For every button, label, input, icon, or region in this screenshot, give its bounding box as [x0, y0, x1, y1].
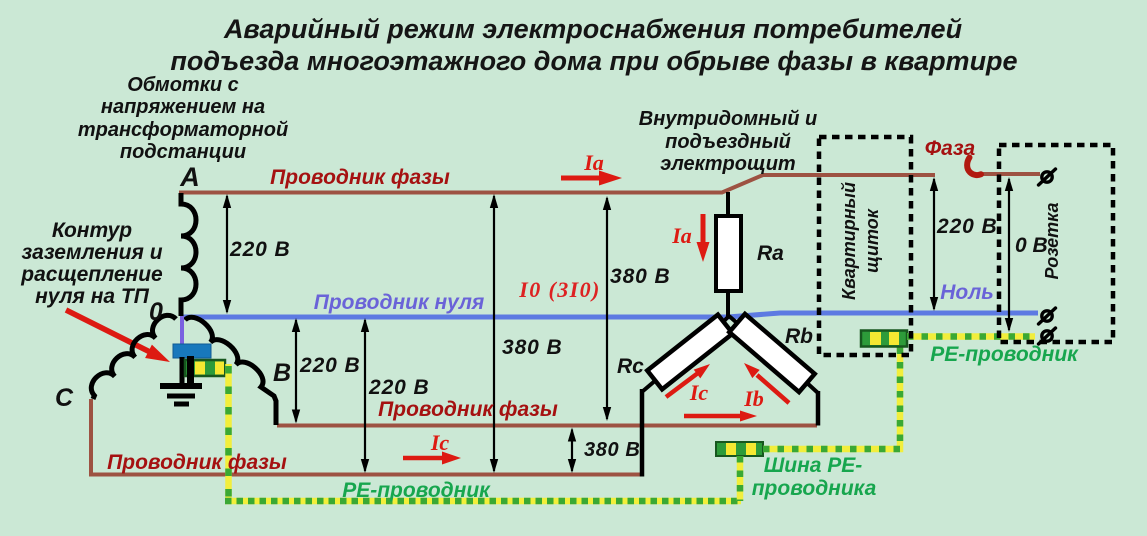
svg-text:PE-проводник: PE-проводник: [930, 343, 1079, 366]
svg-text:Проводник фазы: Проводник фазы: [378, 398, 558, 421]
svg-text:щиток: щиток: [862, 208, 882, 273]
svg-text:расщепление: расщепление: [20, 263, 163, 286]
svg-text:Шина PE-: Шина PE-: [764, 454, 863, 477]
svg-text:380 В: 380 В: [584, 439, 640, 461]
svg-text:трансформаторной: трансформаторной: [78, 119, 288, 141]
svg-text:нуля на ТП: нуля на ТП: [35, 285, 150, 308]
svg-text:А: А: [179, 162, 200, 192]
svg-text:380 В: 380 В: [610, 265, 671, 288]
svg-text:напряжением на: напряжением на: [101, 96, 265, 118]
svg-text:Ia: Ia: [671, 223, 692, 248]
svg-text:заземления и: заземления и: [21, 241, 162, 264]
svg-text:С: С: [55, 384, 74, 412]
svg-text:Ноль: Ноль: [940, 281, 994, 304]
svg-text:Аварийный режим электроснабжен: Аварийный режим электроснабжения потреби…: [223, 14, 963, 44]
svg-text:Ic: Ic: [430, 430, 450, 455]
svg-text:Внутридомный и: Внутридомный и: [639, 108, 817, 130]
svg-text:подъездный: подъездный: [665, 131, 791, 153]
svg-text:Обмотки с: Обмотки с: [127, 74, 239, 96]
svg-text:подстанции: подстанции: [120, 141, 246, 163]
svg-text:0 В: 0 В: [1015, 234, 1048, 257]
svg-text:PE-проводник: PE-проводник: [342, 479, 491, 502]
svg-text:Ra: Ra: [757, 242, 784, 265]
svg-text:Квартирный: Квартирный: [839, 182, 859, 300]
svg-text:380 В: 380 В: [502, 336, 563, 359]
svg-text:электрощит: электрощит: [660, 153, 795, 175]
svg-text:Rb: Rb: [785, 325, 813, 348]
svg-text:проводника: проводника: [752, 477, 877, 500]
svg-text:Ib: Ib: [743, 386, 764, 411]
svg-text:подъезда многоэтажного дома пр: подъезда многоэтажного дома при обрыве ф…: [170, 46, 1017, 76]
svg-text:220 В: 220 В: [368, 376, 430, 399]
svg-text:Контур: Контур: [52, 219, 132, 242]
svg-text:Проводник фазы: Проводник фазы: [270, 166, 450, 189]
svg-text:220 В: 220 В: [229, 238, 291, 261]
svg-text:Фаза: Фаза: [925, 137, 976, 160]
svg-text:Проводник нуля: Проводник нуля: [314, 291, 485, 314]
svg-text:В: В: [273, 359, 291, 387]
svg-text:Ic: Ic: [689, 380, 709, 405]
svg-text:0: 0: [149, 298, 163, 326]
svg-text:220 В: 220 В: [936, 215, 998, 238]
svg-text:Проводник фазы: Проводник фазы: [107, 451, 287, 474]
svg-text:Rc: Rc: [617, 355, 644, 378]
svg-text:I0 (3I0): I0 (3I0): [518, 277, 600, 302]
svg-text:220 В: 220 В: [299, 354, 361, 377]
